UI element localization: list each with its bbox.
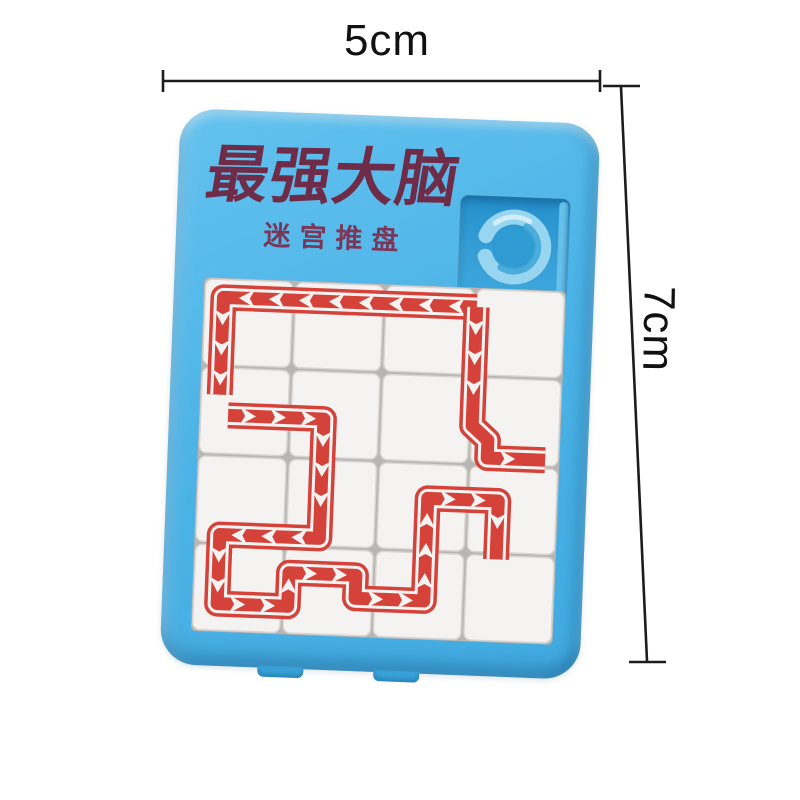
board-title: 最强大脑	[173, 141, 494, 212]
foot-tab	[373, 670, 419, 683]
maze-tile-grid	[191, 277, 566, 645]
board-subtitle: 迷宫推盘	[175, 210, 486, 261]
width-dimension-label: 5cm	[312, 16, 462, 66]
foot-tab	[257, 665, 303, 678]
puzzle-tile	[380, 374, 471, 463]
width-dimension-line	[163, 70, 600, 92]
height-dimension-label: 7cm	[632, 283, 684, 376]
puzzle-tile	[464, 555, 555, 644]
puzzle-board: 最强大脑 迷宫推盘	[159, 108, 600, 680]
ring-icon	[462, 197, 566, 301]
product-photo: 5cm 7cm 最强大脑 迷宫推盘	[0, 0, 800, 800]
